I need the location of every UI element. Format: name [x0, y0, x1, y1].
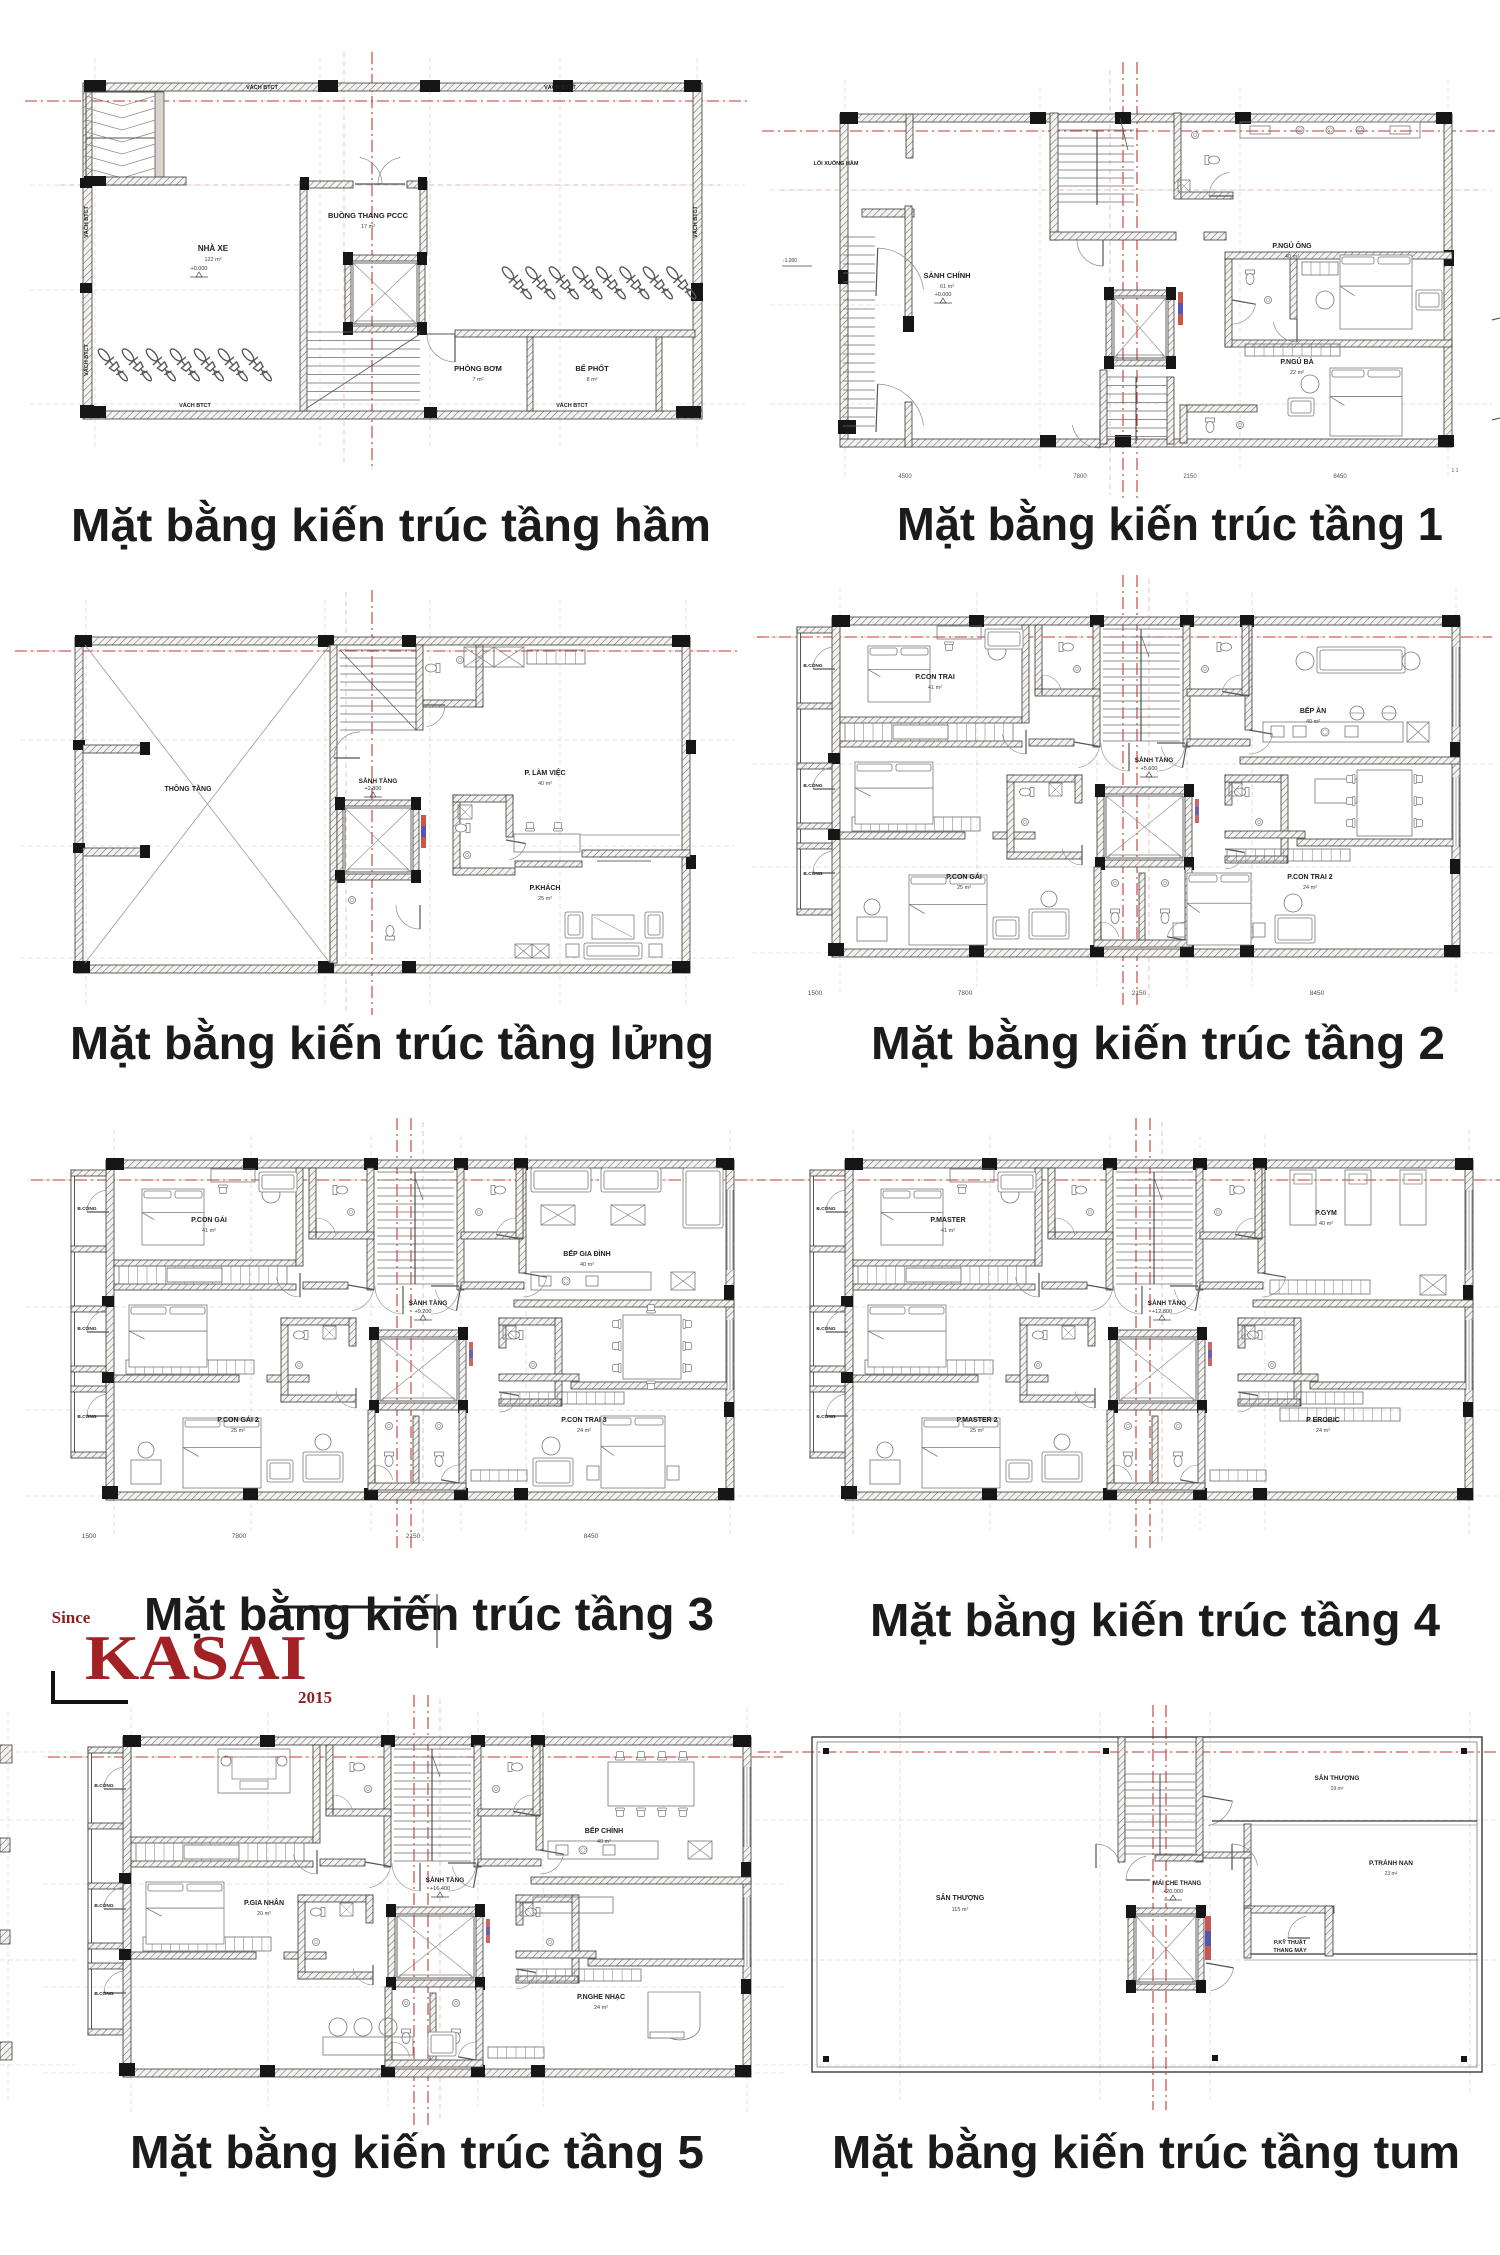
svg-text:P.CON GÁI: P.CON GÁI: [191, 1215, 227, 1224]
svg-text:7800: 7800: [958, 990, 973, 997]
svg-text:7 m²: 7 m²: [473, 377, 484, 383]
svg-text:P.NGỦ ÔNG: P.NGỦ ÔNG: [1272, 241, 1312, 250]
svg-text:BỂ PHỐT: BỂ PHỐT: [575, 363, 609, 373]
svg-text:P.MASTER: P.MASTER: [930, 1217, 965, 1224]
svg-text:LỐI XUỐNG HẦM: LỐI XUỐNG HẦM: [814, 160, 859, 167]
svg-text:115 m²: 115 m²: [952, 1907, 969, 1913]
svg-text:-1.200: -1.200: [783, 258, 797, 264]
svg-text:P.GIA NHÂN: P.GIA NHÂN: [244, 1898, 284, 1907]
svg-text:24 m²: 24 m²: [577, 1428, 591, 1434]
svg-text:2015: 2015: [298, 1688, 332, 1707]
svg-text:SÂN THƯỢNG: SÂN THƯỢNG: [936, 1893, 985, 1902]
svg-text:1 1: 1 1: [1452, 468, 1459, 474]
svg-text:VÁCH BTCT: VÁCH BTCT: [246, 84, 278, 91]
svg-text:7800: 7800: [232, 1533, 247, 1540]
svg-text:25 m²: 25 m²: [231, 1428, 245, 1434]
svg-text:+9.200: +9.200: [415, 1309, 432, 1315]
svg-text:BUỒNG THANG PCCC: BUỒNG THANG PCCC: [328, 210, 409, 220]
svg-text:Mặt bằng kiến trúc tầng tum: Mặt bằng kiến trúc tầng tum: [832, 2126, 1460, 2178]
svg-text:40 m²: 40 m²: [1306, 719, 1320, 725]
svg-text:VÁCH BTCT: VÁCH BTCT: [83, 343, 90, 375]
svg-text:Mặt bằng kiến trúc tầng hầm: Mặt bằng kiến trúc tầng hầm: [71, 499, 711, 551]
svg-text:2150: 2150: [1183, 474, 1197, 480]
svg-text:40 m²: 40 m²: [597, 1839, 611, 1845]
svg-text:+0.000: +0.000: [191, 266, 208, 272]
svg-text:VÁCH BTCT: VÁCH BTCT: [83, 205, 90, 237]
svg-text:Mặt bằng kiến trúc tầng 5: Mặt bằng kiến trúc tầng 5: [130, 2126, 704, 2178]
svg-text:P.KHÁCH: P.KHÁCH: [530, 883, 561, 892]
svg-text:8 m²: 8 m²: [587, 377, 598, 383]
svg-text:40 m²: 40 m²: [1319, 1221, 1333, 1227]
svg-text:25 m²: 25 m²: [538, 896, 552, 902]
svg-text:Mặt bằng kiến trúc tầng 2: Mặt bằng kiến trúc tầng 2: [871, 1017, 1445, 1069]
svg-text:Mặt bằng kiến trúc tầng 1: Mặt bằng kiến trúc tầng 1: [897, 498, 1443, 550]
svg-text:+0.000: +0.000: [935, 292, 952, 298]
svg-text:40 m²: 40 m²: [1285, 254, 1299, 260]
svg-text:40 m²: 40 m²: [538, 781, 552, 787]
svg-text:40 m²: 40 m²: [580, 1262, 594, 1268]
svg-text:+20.000: +20.000: [1163, 1889, 1183, 1895]
svg-text:KASAI: KASAI: [85, 1623, 307, 1693]
svg-text:VÁCH BTCT: VÁCH BTCT: [692, 205, 699, 237]
svg-text:PHÒNG BƠM: PHÒNG BƠM: [454, 364, 502, 373]
svg-text:P.CON TRAI 2: P.CON TRAI 2: [1287, 874, 1332, 881]
svg-text:P.CON TRAI 3: P.CON TRAI 3: [561, 1417, 606, 1424]
svg-text:SÂN THƯỢNG: SÂN THƯỢNG: [1315, 1773, 1360, 1782]
svg-text:41 m²: 41 m²: [928, 685, 942, 691]
svg-text:24 m²: 24 m²: [594, 2005, 608, 2011]
svg-text:+12.800: +12.800: [1152, 1309, 1172, 1315]
svg-text:24 m²: 24 m²: [1303, 885, 1317, 891]
svg-text:P.KỸ THUẬT: P.KỸ THUẬT: [1274, 1939, 1307, 1946]
svg-text:NHÀ XE: NHÀ XE: [198, 244, 229, 253]
svg-text:+16.400: +16.400: [430, 1886, 450, 1892]
svg-text:+5.600: +5.600: [1141, 766, 1158, 772]
svg-text:17 m²: 17 m²: [361, 224, 375, 230]
svg-text:1500: 1500: [82, 1533, 97, 1540]
svg-text:7800: 7800: [1073, 474, 1087, 480]
svg-text:+2.800: +2.800: [365, 786, 382, 792]
svg-text:19 m²: 19 m²: [1331, 1786, 1344, 1792]
svg-text:24 m²: 24 m²: [1316, 1428, 1330, 1434]
svg-text:22 m²: 22 m²: [1290, 370, 1304, 376]
svg-text:P.GYM: P.GYM: [1315, 1210, 1337, 1217]
svg-text:1500: 1500: [808, 990, 823, 997]
svg-text:P.CON GÁI 2: P.CON GÁI 2: [217, 1415, 259, 1424]
svg-text:THANG MÁY: THANG MÁY: [1273, 1947, 1307, 1954]
svg-text:2150: 2150: [406, 1533, 421, 1540]
svg-text:P. LÀM VIỆC: P. LÀM VIỆC: [524, 768, 565, 777]
svg-text:8450: 8450: [1333, 474, 1347, 480]
svg-text:P EROBIC: P EROBIC: [1306, 1417, 1340, 1424]
svg-text:25 m²: 25 m²: [957, 885, 971, 891]
svg-text:61 m²: 61 m²: [940, 284, 954, 290]
svg-text:8450: 8450: [1310, 990, 1325, 997]
svg-text:SẢNH CHÍNH: SẢNH CHÍNH: [923, 271, 970, 280]
svg-text:P.CON GÁI: P.CON GÁI: [946, 872, 982, 881]
svg-text:P.NGỦ BÀ: P.NGỦ BÀ: [1280, 357, 1313, 366]
svg-text:23 m²: 23 m²: [1385, 1871, 1398, 1877]
svg-text:P.TRÁNH NẠN: P.TRÁNH NẠN: [1369, 1858, 1413, 1867]
svg-text:4500: 4500: [898, 474, 912, 480]
svg-text:25 m²: 25 m²: [970, 1428, 984, 1434]
svg-text:P.NGHE NHẠC: P.NGHE NHẠC: [577, 1994, 625, 2001]
svg-text:Mặt bằng kiến trúc tầng 4: Mặt bằng kiến trúc tầng 4: [870, 1594, 1440, 1646]
svg-text:P.CON TRAI: P.CON TRAI: [915, 674, 955, 681]
svg-text:41 m²: 41 m²: [202, 1228, 216, 1234]
svg-text:P.MASTER 2: P.MASTER 2: [956, 1417, 997, 1424]
svg-text:Mặt bằng kiến trúc tầng lửng: Mặt bằng kiến trúc tầng lửng: [70, 1017, 714, 1069]
svg-text:122 m²: 122 m²: [204, 257, 221, 263]
svg-text:VÁCH BTCT: VÁCH BTCT: [179, 402, 211, 409]
svg-text:2150: 2150: [1132, 990, 1147, 997]
svg-text:VÁCH BTCT: VÁCH BTCT: [556, 402, 588, 409]
svg-text:41 m²: 41 m²: [941, 1228, 955, 1234]
svg-text:20 m²: 20 m²: [257, 1911, 271, 1917]
svg-text:VÁCH BTCT: VÁCH BTCT: [544, 84, 576, 91]
svg-text:8450: 8450: [584, 1533, 599, 1540]
svg-text:MÁI CHE THANG: MÁI CHE THANG: [1153, 1880, 1202, 1887]
